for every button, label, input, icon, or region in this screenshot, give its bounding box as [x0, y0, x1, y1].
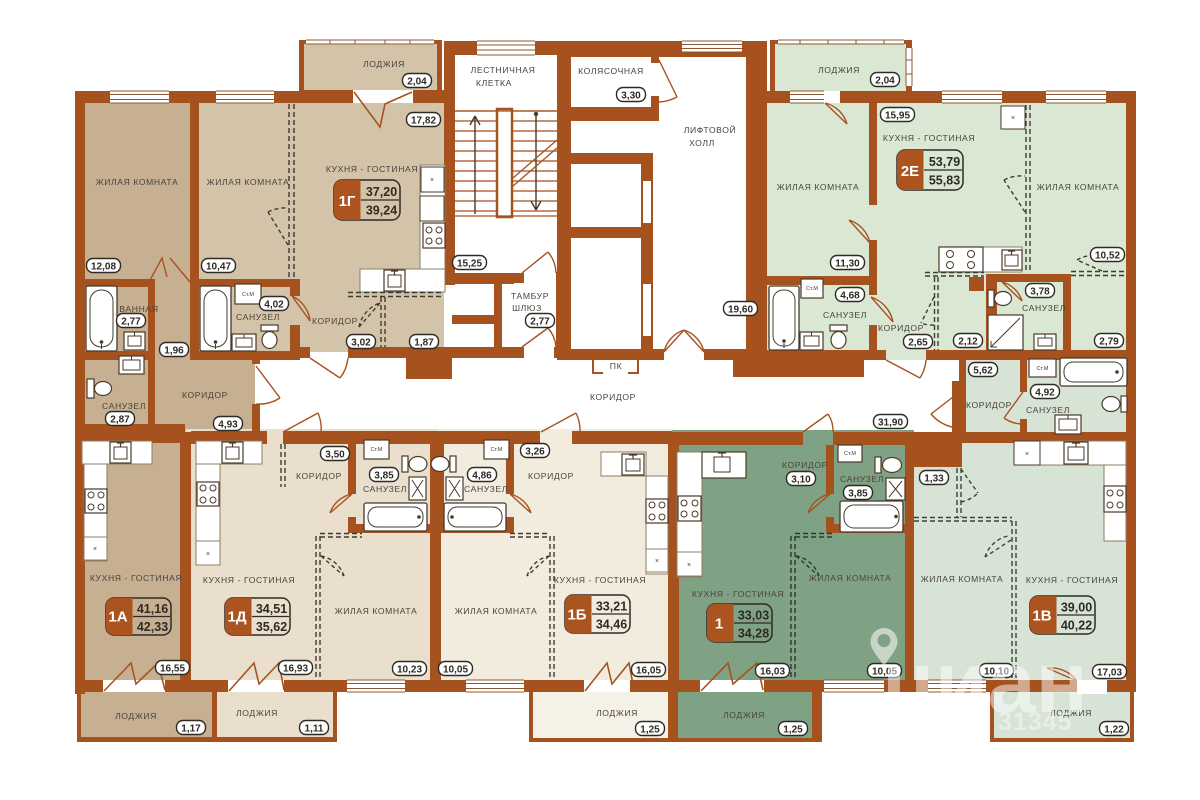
svg-text:33,21: 33,21	[596, 600, 627, 614]
svg-text:19,60: 19,60	[728, 305, 753, 316]
svg-text:17,82: 17,82	[411, 116, 436, 127]
svg-text:3,50: 3,50	[325, 450, 345, 461]
svg-text:САНУЗЕЛ: САНУЗЕЛ	[363, 484, 407, 494]
svg-text:11,30: 11,30	[835, 259, 860, 270]
svg-text:10,47: 10,47	[206, 262, 231, 273]
svg-text:4,92: 4,92	[1035, 388, 1055, 399]
svg-text:1А: 1А	[108, 609, 127, 626]
svg-text:35,62: 35,62	[256, 620, 287, 634]
svg-text:3,85: 3,85	[374, 471, 394, 482]
svg-text:КЛЕТКА: КЛЕТКА	[476, 78, 512, 88]
svg-text:2,79: 2,79	[1099, 337, 1119, 348]
svg-text:2,04: 2,04	[875, 76, 895, 87]
svg-text:КОРИДОР: КОРИДОР	[878, 323, 924, 333]
svg-text:КОРИДОР: КОРИДОР	[296, 471, 342, 481]
svg-text:×: ×	[93, 546, 97, 553]
svg-text:×: ×	[430, 177, 434, 184]
svg-text:2,04: 2,04	[407, 77, 427, 88]
svg-text:37,20: 37,20	[366, 185, 397, 199]
svg-text:ЖИЛАЯ КОМНАТА: ЖИЛАЯ КОМНАТА	[921, 574, 1004, 584]
svg-text:10,23: 10,23	[397, 665, 422, 676]
svg-text:КОЛЯСОЧНАЯ: КОЛЯСОЧНАЯ	[578, 66, 644, 76]
svg-text:10,05: 10,05	[443, 665, 468, 676]
svg-text:1Б: 1Б	[567, 607, 586, 624]
svg-text:КУХНЯ - ГОСТИНАЯ: КУХНЯ - ГОСТИНАЯ	[203, 575, 295, 585]
svg-text:КОРИДОР: КОРИДОР	[312, 316, 358, 326]
svg-text:ЛЕСТНИЧНАЯ: ЛЕСТНИЧНАЯ	[471, 65, 536, 75]
svg-text:12,08: 12,08	[91, 262, 116, 273]
svg-text:Ст.М: Ст.М	[371, 447, 383, 453]
svg-text:Ст.М: Ст.М	[844, 451, 856, 457]
svg-text:ХОЛЛ: ХОЛЛ	[689, 138, 715, 148]
svg-text:ПК: ПК	[610, 361, 622, 371]
svg-text:САНУЗЕЛ: САНУЗЕЛ	[1022, 303, 1066, 313]
svg-text:17,03: 17,03	[1097, 668, 1122, 679]
svg-text:САНУЗЕЛ: САНУЗЕЛ	[102, 401, 146, 411]
svg-text:ЛОДЖИЯ: ЛОДЖИЯ	[596, 708, 638, 718]
svg-text:34,51: 34,51	[256, 602, 287, 616]
svg-text:2,12: 2,12	[958, 337, 978, 348]
svg-text:КОРИДОР: КОРИДОР	[590, 392, 636, 402]
svg-text:41,16: 41,16	[137, 602, 168, 616]
svg-text:3,26: 3,26	[525, 447, 545, 458]
svg-text:1,96: 1,96	[164, 346, 184, 357]
svg-text:2,77: 2,77	[121, 317, 141, 328]
svg-text:4,93: 4,93	[218, 420, 238, 431]
svg-text:ЖИЛАЯ КОМНАТА: ЖИЛАЯ КОМНАТА	[207, 177, 290, 187]
svg-text:КУХНЯ - ГОСТИНАЯ: КУХНЯ - ГОСТИНАЯ	[326, 164, 418, 174]
svg-text:ЖИЛАЯ КОМНАТА: ЖИЛАЯ КОМНАТА	[455, 606, 538, 616]
svg-text:КУХНЯ - ГОСТИНАЯ: КУХНЯ - ГОСТИНАЯ	[883, 133, 975, 143]
svg-text:34,28: 34,28	[738, 627, 769, 641]
svg-text:ВАННАЯ: ВАННАЯ	[119, 304, 158, 314]
svg-text:2,65: 2,65	[908, 338, 928, 349]
svg-text:КУХНЯ - ГОСТИНАЯ: КУХНЯ - ГОСТИНАЯ	[692, 589, 784, 599]
svg-text:1,25: 1,25	[783, 725, 803, 736]
svg-text:КУХНЯ - ГОСТИНАЯ: КУХНЯ - ГОСТИНАЯ	[1026, 575, 1118, 585]
svg-text:САНУЗЕЛ: САНУЗЕЛ	[823, 310, 867, 320]
svg-text:16,05: 16,05	[636, 666, 661, 677]
svg-text:15,95: 15,95	[885, 111, 910, 122]
svg-text:ШЛЮЗ: ШЛЮЗ	[512, 303, 542, 313]
svg-text:ЛОДЖИЯ: ЛОДЖИЯ	[723, 710, 765, 720]
svg-text:КОРИДОР: КОРИДОР	[782, 460, 828, 470]
svg-text:33,03: 33,03	[738, 609, 769, 623]
svg-text:4,86: 4,86	[472, 471, 492, 482]
svg-text:САНУЗЕЛ: САНУЗЕЛ	[464, 484, 508, 494]
svg-text:31,90: 31,90	[878, 418, 903, 429]
svg-text:3,10: 3,10	[791, 475, 811, 486]
svg-text:53,79: 53,79	[929, 155, 960, 169]
svg-text:Ст.М: Ст.М	[242, 292, 254, 298]
svg-text:40,22: 40,22	[1061, 619, 1092, 633]
svg-text:ТАМБУР: ТАМБУР	[511, 291, 549, 301]
svg-text:КУХНЯ - ГОСТИНАЯ: КУХНЯ - ГОСТИНАЯ	[90, 573, 182, 583]
svg-text:ЛОДЖИЯ: ЛОДЖИЯ	[363, 59, 405, 69]
svg-text:2,77: 2,77	[530, 317, 550, 328]
svg-text:ЛОДЖИЯ: ЛОДЖИЯ	[115, 711, 157, 721]
svg-text:КОРИДОР: КОРИДОР	[528, 471, 574, 481]
svg-text:ЖИЛАЯ КОМНАТА: ЖИЛАЯ КОМНАТА	[777, 182, 860, 192]
svg-text:ЖИЛАЯ КОМНАТА: ЖИЛАЯ КОМНАТА	[1037, 182, 1120, 192]
svg-text:1: 1	[715, 616, 723, 633]
svg-text:39,24: 39,24	[366, 204, 397, 218]
svg-text:4,68: 4,68	[840, 291, 860, 302]
svg-text:ЖИЛАЯ КОМНАТА: ЖИЛАЯ КОМНАТА	[335, 606, 418, 616]
svg-text:16,93: 16,93	[283, 664, 308, 675]
svg-text:ЛОДЖИЯ: ЛОДЖИЯ	[236, 708, 278, 718]
svg-text:×: ×	[1011, 115, 1015, 122]
svg-text:Ст.М: Ст.М	[806, 286, 818, 292]
svg-text:1,11: 1,11	[305, 724, 324, 735]
svg-text:1,25: 1,25	[640, 725, 660, 736]
svg-text:16,55: 16,55	[160, 664, 185, 675]
svg-text:15,25: 15,25	[457, 259, 482, 270]
svg-text:16,03: 16,03	[760, 667, 785, 678]
svg-text:4,02: 4,02	[264, 300, 284, 311]
svg-text:САНУЗЕЛ: САНУЗЕЛ	[840, 474, 884, 484]
svg-text:КОРИДОР: КОРИДОР	[182, 390, 228, 400]
svg-text:×: ×	[206, 551, 210, 558]
svg-text:42,33: 42,33	[137, 620, 168, 634]
svg-text:1Д: 1Д	[227, 609, 246, 626]
svg-text:ЖИЛАЯ КОМНАТА: ЖИЛАЯ КОМНАТА	[809, 573, 892, 583]
svg-text:3,02: 3,02	[351, 338, 371, 349]
svg-text:34,46: 34,46	[596, 618, 627, 632]
svg-text:55,83: 55,83	[929, 174, 960, 188]
svg-text:САНУЗЕЛ: САНУЗЕЛ	[1026, 405, 1070, 415]
svg-text:САНУЗЕЛ: САНУЗЕЛ	[236, 312, 280, 322]
svg-text:2Е: 2Е	[901, 163, 919, 180]
svg-text:3,85: 3,85	[848, 489, 868, 500]
svg-text:×: ×	[1025, 451, 1029, 458]
svg-text:10,52: 10,52	[1095, 251, 1120, 262]
svg-text:31345: 31345	[998, 708, 1073, 736]
svg-text:ЛИФТОВОЙ: ЛИФТОВОЙ	[684, 124, 737, 135]
svg-text:×: ×	[655, 558, 659, 565]
svg-text:1Г: 1Г	[339, 193, 356, 210]
svg-text:КУХНЯ - ГОСТИНАЯ: КУХНЯ - ГОСТИНАЯ	[554, 575, 646, 585]
svg-text:Ст.М: Ст.М	[1037, 366, 1049, 372]
svg-text:1,17: 1,17	[181, 724, 201, 735]
svg-text:3,78: 3,78	[1030, 287, 1050, 298]
svg-text:5,62: 5,62	[973, 366, 993, 377]
svg-text:3,30: 3,30	[621, 91, 641, 102]
svg-text:КОРИДОР: КОРИДОР	[966, 400, 1012, 410]
svg-text:39,00: 39,00	[1061, 601, 1092, 615]
svg-text:×: ×	[687, 562, 691, 569]
svg-text:1В: 1В	[1032, 608, 1051, 625]
svg-text:1,33: 1,33	[924, 474, 944, 485]
svg-text:ЛОДЖИЯ: ЛОДЖИЯ	[818, 65, 860, 75]
svg-text:1,22: 1,22	[1104, 725, 1124, 736]
svg-text:1,87: 1,87	[414, 338, 434, 349]
svg-text:Ст.М: Ст.М	[491, 447, 503, 453]
svg-text:ЖИЛАЯ КОМНАТА: ЖИЛАЯ КОМНАТА	[96, 177, 179, 187]
svg-text:2,87: 2,87	[110, 415, 130, 426]
